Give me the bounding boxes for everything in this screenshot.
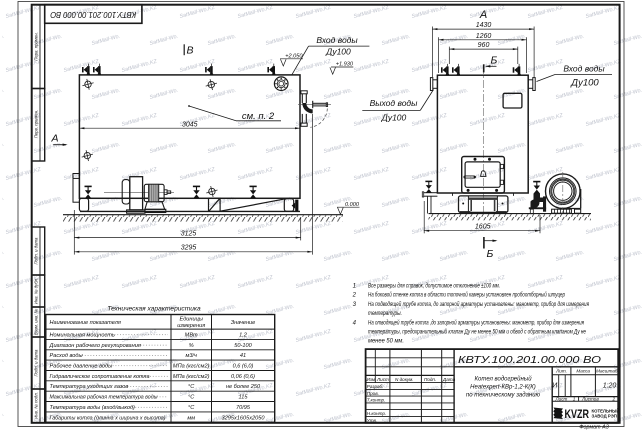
svg-text:На боковой стенке котла в обла: На боковой стенке котла в области топочн… [368,292,565,299]
svg-text:не более 250: не более 250 [226,384,261,390]
svg-text:мм: мм [187,415,195,421]
svg-text:Рабочее давление воды: Рабочее давление воды [50,364,113,370]
svg-text:КВТУ.100.201.00.000 ВО: КВТУ.100.201.00.000 ВО [458,354,601,366]
svg-text:Лит.: Лит. [555,369,567,374]
svg-text:3295: 3295 [181,245,197,252]
svg-text:3045: 3045 [182,121,198,128]
svg-text:3125: 3125 [181,230,197,237]
svg-text:2: 2 [612,396,616,401]
svg-text:1605: 1605 [475,224,491,231]
svg-text:1260: 1260 [476,33,492,40]
svg-text:А: А [479,9,487,21]
svg-text:°С: °С [188,405,195,411]
svg-text:по техническому заданию: по техническому заданию [466,393,541,399]
svg-text:Н.контр.: Н.контр. [367,411,386,416]
svg-text:м3/ч: м3/ч [185,353,196,359]
svg-text:°С: °С [188,395,195,401]
svg-text:В: В [187,45,194,57]
svg-text:На подводящей трубе котла, до: На подводящей трубе котла, до запорной а… [368,301,590,308]
svg-text:Пров.: Пров. [367,391,379,396]
svg-text:Гидравлическое сопротивление к: Гидравлическое сопротивление котла [50,374,150,380]
svg-text:Подп.: Подп. [424,377,436,382]
svg-text:Выход воды: Выход воды [370,98,419,108]
svg-text:°С: °С [188,384,195,390]
svg-text:температуры, предохранительный: температуры, предохранительный клапан Ду… [368,329,587,336]
svg-text:Техническая характеристика: Техническая характеристика [107,306,201,313]
svg-text:1:20: 1:20 [603,382,617,389]
svg-text:МПа (кгс/см2): МПа (кгс/см2) [173,364,210,370]
svg-text:KVZR: KVZR [565,409,590,421]
svg-text:Значение: Значение [231,320,256,326]
svg-text:0,6 (6,0): 0,6 (6,0) [233,364,254,370]
svg-text:0,06 (0,6): 0,06 (0,6) [231,374,255,380]
svg-text:Номинальная мощность: Номинальная мощность [50,333,115,339]
svg-text:70/95: 70/95 [236,405,251,411]
svg-text:1: 1 [353,284,356,290]
svg-text:см. п. 2: см. п. 2 [242,111,275,122]
svg-text:Котел водогрейный: Котел водогрейный [474,376,532,383]
svg-text:Масса: Масса [576,369,590,374]
svg-text:Взам. инв. №: Взам. инв. № [34,308,39,335]
svg-text:Температура уходящих газов: Температура уходящих газов [50,384,129,390]
svg-text:1: 1 [573,396,576,401]
svg-text:Габариты котла (длинна х ширин: Габариты котла (длинна х ширина х высота… [50,415,166,421]
svg-text:Дата: Дата [442,377,456,382]
svg-text:Наименование показателя: Наименование показателя [50,320,121,326]
svg-text:Инв. № подл.: Инв. № подл. [34,392,39,419]
svg-text:МВт: МВт [185,333,198,339]
svg-text:Диапазон рабочего регулировани: Диапазон рабочего регулирования [49,343,141,349]
svg-text:измерения: измерения [177,323,205,329]
svg-text:Т.контр.: Т.контр. [367,398,386,403]
svg-text:Разраб.: Разраб. [367,384,384,389]
svg-text:МПа (кгс/см2): МПа (кгс/см2) [173,374,210,380]
svg-text:КВТУ.100.201.00.000 ВО: КВТУ.100.201.00.000 ВО [50,10,136,19]
svg-text:Лист: Лист [376,377,389,382]
svg-text:Формат А3: Формат А3 [579,425,609,430]
svg-text:Масштаб: Масштаб [596,369,618,374]
svg-text:Подп. и дата: Подп. и дата [34,237,39,265]
svg-text:1430: 1430 [476,22,492,29]
svg-text:41: 41 [240,353,246,359]
svg-text:Ду100: Ду100 [570,78,599,89]
svg-text:Ду100: Ду100 [325,47,351,57]
svg-text:Б: Б [491,55,498,67]
svg-text:Ду100: Ду100 [381,113,407,123]
svg-text:менее 50 мм.: менее 50 мм. [368,339,404,345]
svg-text:На отводящей трубе котла ,до з: На отводящей трубе котла ,до запорной ар… [368,319,585,326]
svg-text:115: 115 [239,395,249,401]
svg-text:50-100: 50-100 [234,343,252,349]
svg-text:Утв.: Утв. [367,418,377,423]
svg-text:N докум.: N докум. [395,377,414,382]
svg-text:3295х1605х2050: 3295х1605х2050 [222,415,266,421]
svg-text:Единицы: Единицы [179,317,202,323]
svg-text:Перв. примен.: Перв. примен. [34,110,39,139]
svg-text:Все размеры для справок, допус: Все размеры для справок, допустимое откл… [368,284,500,290]
svg-text:температуры.: температуры. [368,311,402,317]
svg-text:Б: Б [487,248,494,260]
svg-text:Инв. № дубл.: Инв. № дубл. [34,278,39,304]
svg-text:Подп. и дата: Подп. и дата [34,349,39,377]
svg-text:Вход воды: Вход воды [316,35,358,45]
svg-text:Heatexpert-КВр-1,2-К(К): Heatexpert-КВр-1,2-К(К) [470,385,536,391]
svg-text:Изм: Изм [367,377,376,382]
svg-text:Максимальная рабочая температу: Максимальная рабочая температура воды [50,395,158,401]
svg-text:Листов: Листов [581,396,599,401]
svg-text:А: А [51,133,59,145]
svg-text:Лист: Лист [555,396,568,401]
svg-text:Вход воды: Вход воды [563,64,605,74]
svg-text:960: 960 [478,42,490,49]
svg-text:Температура воды (вход/выход): Температура воды (вход/выход) [50,405,136,411]
svg-text:КОТЕЛЬНЫЙ: КОТЕЛЬНЫЙ [592,408,620,413]
svg-text:%: % [189,343,194,349]
svg-text:ЗАВОД РЭП: ЗАВОД РЭП [592,414,617,419]
svg-text:Перв. примен.: Перв. примен. [34,32,39,61]
svg-text:Расход воды: Расход воды [50,353,83,359]
svg-text:1,2: 1,2 [239,333,248,339]
svg-text:2: 2 [352,293,357,299]
